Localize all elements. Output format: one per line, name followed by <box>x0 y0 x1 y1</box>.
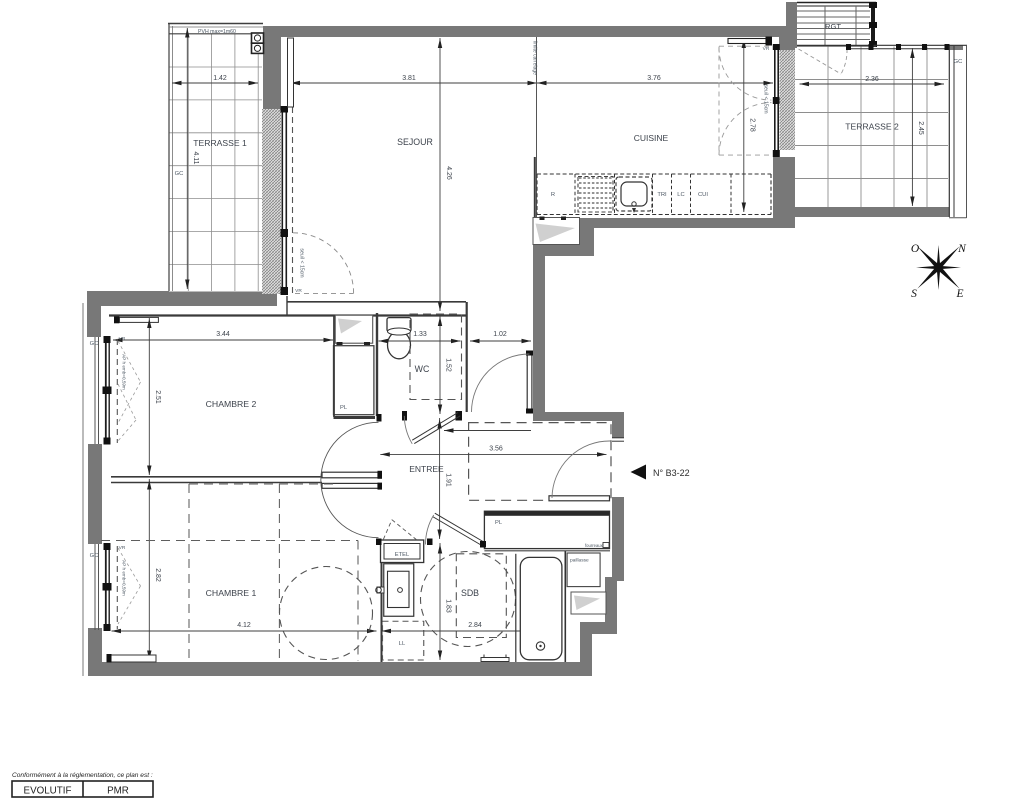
svg-text:1.91: 1.91 <box>445 473 452 487</box>
svg-text:GC: GC <box>90 341 99 347</box>
svg-text:PL: PL <box>340 405 348 411</box>
svg-text:SDB: SDB <box>461 588 479 598</box>
svg-text:2.45: 2.45 <box>917 121 924 135</box>
svg-text:ETEL: ETEL <box>395 552 410 558</box>
svg-text:WC: WC <box>415 364 430 374</box>
svg-text:VR: VR <box>119 336 126 342</box>
svg-text:PMR: PMR <box>107 786 129 797</box>
svg-text:1.02: 1.02 <box>493 331 507 338</box>
svg-text:paillasse: paillasse <box>570 558 589 564</box>
svg-text:ENTREE: ENTREE <box>409 464 444 474</box>
svg-text:seuil < 15cm: seuil < 15cm <box>299 248 305 277</box>
svg-text:2.51: 2.51 <box>154 390 161 404</box>
svg-text:PL: PL <box>495 520 503 526</box>
svg-text:R: R <box>551 192 555 198</box>
svg-text:AP h emb=0,59m: AP h emb=0,59m <box>122 560 127 596</box>
svg-text:3.44: 3.44 <box>216 331 230 338</box>
svg-text:GC: GC <box>90 553 99 559</box>
svg-text:2.78: 2.78 <box>749 118 756 132</box>
svg-text:4.26: 4.26 <box>445 166 452 180</box>
svg-text:2.82: 2.82 <box>154 568 161 582</box>
svg-text:1.83: 1.83 <box>445 599 452 613</box>
svg-text:GC: GC <box>175 171 184 177</box>
svg-text:TERRASSE 1: TERRASSE 1 <box>193 138 247 148</box>
svg-text:seuil < 15cm: seuil < 15cm <box>763 84 769 113</box>
svg-text:EVOLUTIF: EVOLUTIF <box>24 786 72 797</box>
svg-text:S: S <box>911 288 917 300</box>
svg-text:SEJOUR: SEJOUR <box>397 137 433 147</box>
svg-text:RGT: RGT <box>825 22 841 31</box>
svg-text:N° B3-22: N° B3-22 <box>653 468 690 478</box>
svg-text:CHAMBRE 2: CHAMBRE 2 <box>206 399 257 409</box>
svg-text:fourreaux: fourreaux <box>585 543 604 548</box>
svg-text:LL: LL <box>399 641 406 647</box>
svg-text:4.11: 4.11 <box>192 151 199 164</box>
svg-text:LC: LC <box>677 192 684 198</box>
svg-text:VR: VR <box>295 288 302 294</box>
svg-text:limite carrelage: limite carrelage <box>532 41 538 75</box>
svg-text:CUISINE: CUISINE <box>634 133 669 143</box>
svg-text:PVH max=1m60: PVH max=1m60 <box>198 29 236 35</box>
svg-text:VR: VR <box>119 545 126 551</box>
svg-text:TRI: TRI <box>657 192 667 198</box>
svg-text:3.56: 3.56 <box>489 446 503 453</box>
svg-text:4.12: 4.12 <box>237 622 251 629</box>
svg-text:1.42: 1.42 <box>213 75 227 82</box>
svg-text:N: N <box>957 243 967 255</box>
svg-text:1.52: 1.52 <box>445 358 452 372</box>
svg-text:3.76: 3.76 <box>647 75 661 82</box>
svg-text:2.36: 2.36 <box>865 76 879 83</box>
svg-text:VR: VR <box>763 46 770 52</box>
svg-text:2.84: 2.84 <box>468 622 482 629</box>
svg-text:GC: GC <box>954 59 963 65</box>
svg-text:O: O <box>911 243 920 255</box>
svg-text:AP h emb=0,59m: AP h emb=0,59m <box>122 354 127 390</box>
svg-text:Conformément à la réglementati: Conformément à la réglementation, ce pla… <box>12 772 153 779</box>
svg-text:TERRASSE 2: TERRASSE 2 <box>845 122 899 132</box>
svg-text:CUI: CUI <box>698 192 708 198</box>
svg-text:1.33: 1.33 <box>413 331 427 338</box>
svg-text:E: E <box>955 288 963 300</box>
svg-text:CHAMBRE 1: CHAMBRE 1 <box>206 588 257 598</box>
svg-text:3.81: 3.81 <box>402 75 416 82</box>
